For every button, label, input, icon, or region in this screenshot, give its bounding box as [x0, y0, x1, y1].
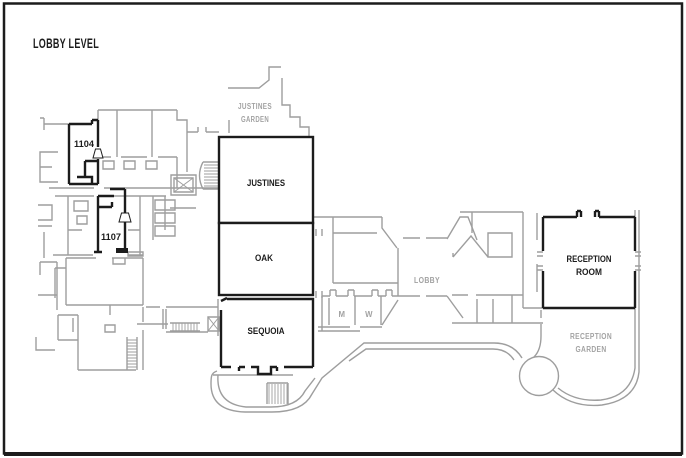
area-label-reception-garden-line1: RECEPTION — [570, 332, 612, 341]
room-label-justines: JUSTINES — [247, 178, 285, 188]
room-label-reception-line1: RECEPTION — [567, 254, 612, 264]
room-label-1104: 1104 — [74, 139, 94, 149]
door-icon — [93, 149, 103, 158]
area-label-mens-restroom: M — [339, 310, 346, 319]
room-sequoia — [221, 298, 313, 374]
area-label-justines-garden-line1: JUSTINES — [238, 102, 272, 111]
page-title: LOBBY LEVEL — [33, 35, 99, 51]
room-label-oak: OAK — [255, 253, 273, 263]
room-label-1107: 1107 — [101, 232, 121, 242]
area-label-justines-garden-line2: GARDEN — [241, 115, 269, 124]
area-label-reception-garden-line2: GARDEN — [576, 345, 607, 354]
door-icon — [119, 213, 131, 222]
terrace-outline — [211, 343, 522, 412]
garden-fountain — [520, 357, 559, 396]
area-label-womens-restroom: W — [365, 310, 373, 319]
restrooms-outline — [318, 290, 398, 331]
door-threshold — [116, 248, 128, 253]
area-label-lobby: LOBBY — [414, 276, 440, 285]
page-border — [4, 4, 682, 454]
room-label-reception-line2: ROOM — [576, 267, 602, 277]
floor-plan: LOBBY LEVEL JUSTINES OAK SEQUOIA RECEPTI… — [0, 0, 686, 458]
room-label-sequoia: SEQUOIA — [248, 326, 285, 336]
secondary-walls — [36, 67, 641, 412]
room-1104 — [69, 120, 98, 184]
floor-plan-page: LOBBY LEVEL JUSTINES OAK SEQUOIA RECEPTI… — [0, 0, 686, 458]
